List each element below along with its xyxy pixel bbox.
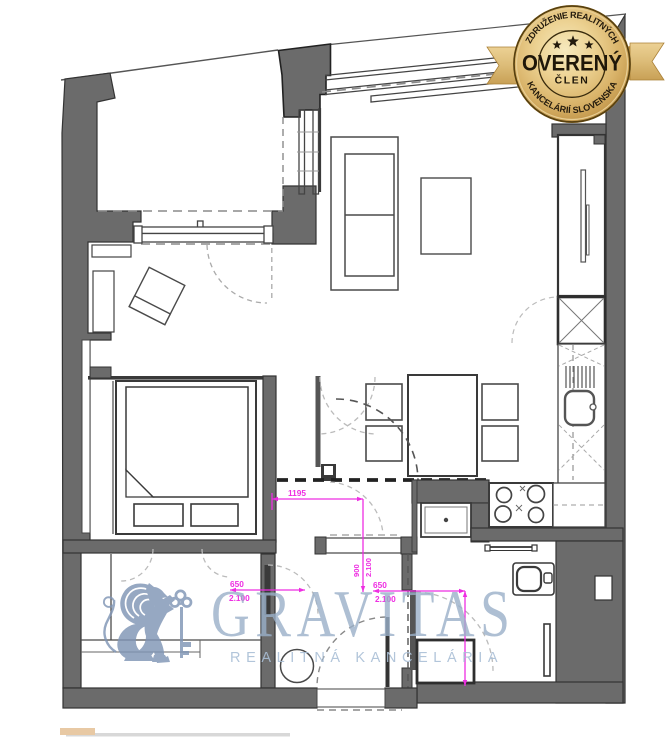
svg-text:GRAVITAS: GRAVITAS [211,577,516,651]
svg-text:1195: 1195 [288,488,306,498]
svg-text:ČLEN: ČLEN [555,74,590,87]
svg-text:900: 900 [352,564,361,577]
svg-text:OVERENÝ: OVERENÝ [522,51,622,76]
svg-text:REALITNÁ KANCELÁRIA: REALITNÁ KANCELÁRIA [230,649,503,666]
svg-text:2.100: 2.100 [364,558,373,577]
